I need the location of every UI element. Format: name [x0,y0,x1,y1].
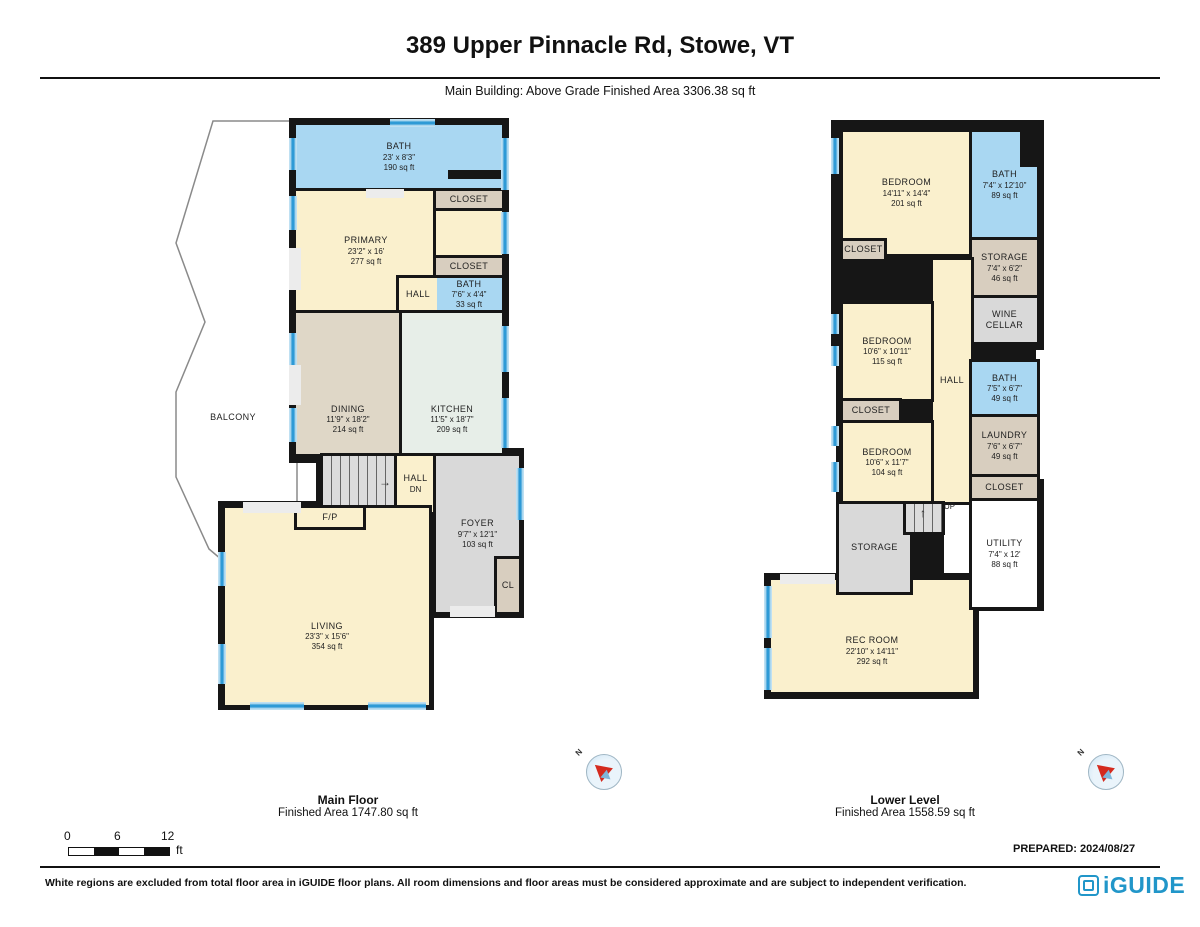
stairs-lower-up [903,501,945,535]
stairs-up-label: UP [944,502,955,511]
window [289,408,297,442]
wall-notch [448,170,505,179]
room-closet-1: CLOSET [433,188,505,211]
room-closet-ll-a: CLOSET [840,238,887,262]
door [289,365,301,405]
window [289,138,297,170]
room-cl: CL [494,556,522,615]
door [450,606,495,617]
room-primary-dressing [433,207,505,261]
room-storage-1: STORAGE 7'4" x 6'2" 46 sq ft [969,237,1040,299]
compass-north-label: N [1076,747,1086,757]
window [831,346,839,366]
compass-icon: N [1078,746,1126,790]
door [243,502,301,513]
room-bath-main-top: BATH 23' x 8'3" 190 sq ft [293,122,505,192]
window [764,586,772,638]
window [501,212,509,254]
room-storage-2: STORAGE [836,501,913,595]
wall-notch [1020,125,1040,167]
door [366,189,404,198]
room-bath-ll-2: BATH 7'5" x 6'7" 49 sq ft [969,359,1040,418]
window [764,648,772,690]
compass-icon: N [576,746,624,790]
window [501,398,509,448]
window [516,468,524,520]
room-wine-cellar: WINE CELLAR [969,295,1040,345]
scale-bar [68,847,170,856]
floorplan-page: 389 Upper Pinnacle Rd, Stowe, VT Main Bu… [0,0,1200,927]
window [831,138,839,174]
window [390,119,435,127]
window [250,702,304,710]
door [289,248,301,290]
window [501,138,509,190]
room-bath-small: BATH 7'6" x 4'4" 33 sq ft [433,275,505,314]
compass-north-label: N [574,747,584,757]
room-hall-upper: HALL [396,275,437,314]
window [368,702,426,710]
room-living: LIVING 23'3" x 15'6" 354 sq ft [222,505,432,708]
window [831,462,839,492]
room-kitchen: KITCHEN 11'5" x 18'7" 209 sq ft [399,310,505,457]
room-dining: DINING 11'9" x 18'2" 214 sq ft [293,310,403,457]
room-bedroom-2: BEDROOM 10'6" x 10'11" 115 sq ft [840,301,934,402]
room-hall-ll: HALL [930,257,974,505]
room-laundry: LAUNDRY 7'6" x 6'7" 49 sq ft [969,414,1040,478]
room-fireplace: F/P [294,505,366,530]
room-utility: UTILITY 7'4" x 12' 88 sq ft [969,498,1040,610]
window [501,326,509,372]
window [831,314,839,334]
window [831,426,839,446]
window [289,196,297,230]
window [218,552,226,586]
room-balcony-label: BALCONY [193,412,273,422]
room-bedroom-3: BEDROOM 10'6" x 11'7" 104 sq ft [840,420,934,505]
stairs-main-dn [320,453,398,513]
window [218,644,226,684]
door [780,574,835,584]
